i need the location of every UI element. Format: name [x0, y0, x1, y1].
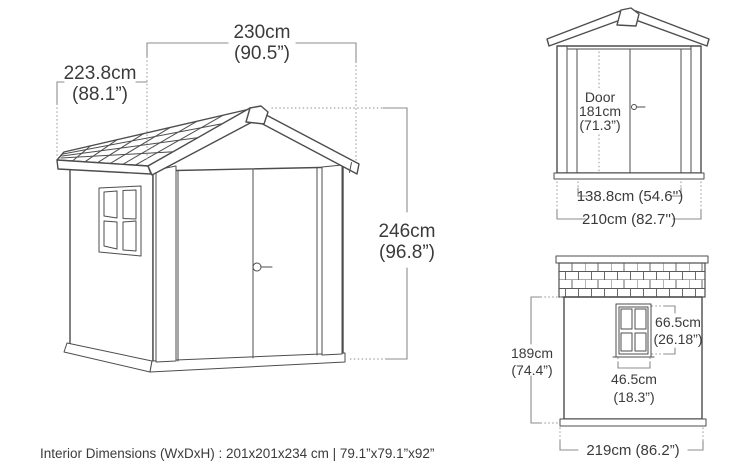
shed-dimension-diagram: 230cm (90.5”) 223.8cm (88.1”) 246cm (96.… [0, 0, 747, 471]
window-height-metric: 66.5cm [655, 314, 701, 330]
side-height-metric: 189cm [511, 345, 553, 361]
height-label-imperial: (96.8”) [379, 242, 435, 263]
side-fascia [556, 256, 708, 263]
door-height-imperial: (71.3”) [579, 117, 620, 133]
interior-dimensions-text: Interior Dimensions (WxDxH) : 201x201x23… [40, 446, 434, 461]
front-left-post [156, 166, 176, 362]
side-elevation-drawing [531, 256, 708, 450]
width-label-imperial: (90.5”) [234, 43, 290, 64]
window-height-imperial: (26.18”) [653, 331, 702, 347]
main-shed-drawing [57, 106, 359, 372]
front-roof-right [633, 11, 709, 46]
door-width-label: 138.8cm (54.6'') [577, 188, 684, 205]
side-height-imperial: (74.4”) [511, 362, 552, 378]
height-label-metric: 246cm [378, 221, 435, 242]
side-window [613, 304, 654, 357]
front-peak-cap [617, 8, 639, 26]
side-shingle-band [559, 263, 705, 297]
window-width-metric: 46.5cm [611, 371, 657, 387]
front-right-post [322, 165, 342, 355]
front-base [554, 173, 704, 179]
front-overall-width-label: 210cm (82.7'') [582, 211, 676, 228]
width-label-metric: 230cm [233, 22, 290, 43]
side-base [560, 419, 706, 426]
window-width-imperial: (18.3”) [613, 389, 654, 405]
side-overall-width-label: 219cm (86.2”) [586, 442, 679, 459]
right-fascia [253, 108, 359, 174]
depth-label-imperial: (88.1”) [72, 84, 128, 105]
front-roof-left [547, 11, 623, 46]
diagram-svg: 230cm (90.5”) 223.8cm (88.1”) 246cm (96.… [0, 0, 747, 471]
depth-label-metric: 223.8cm [64, 63, 137, 84]
roof-peak-cap [246, 106, 268, 124]
side-window [99, 186, 141, 256]
